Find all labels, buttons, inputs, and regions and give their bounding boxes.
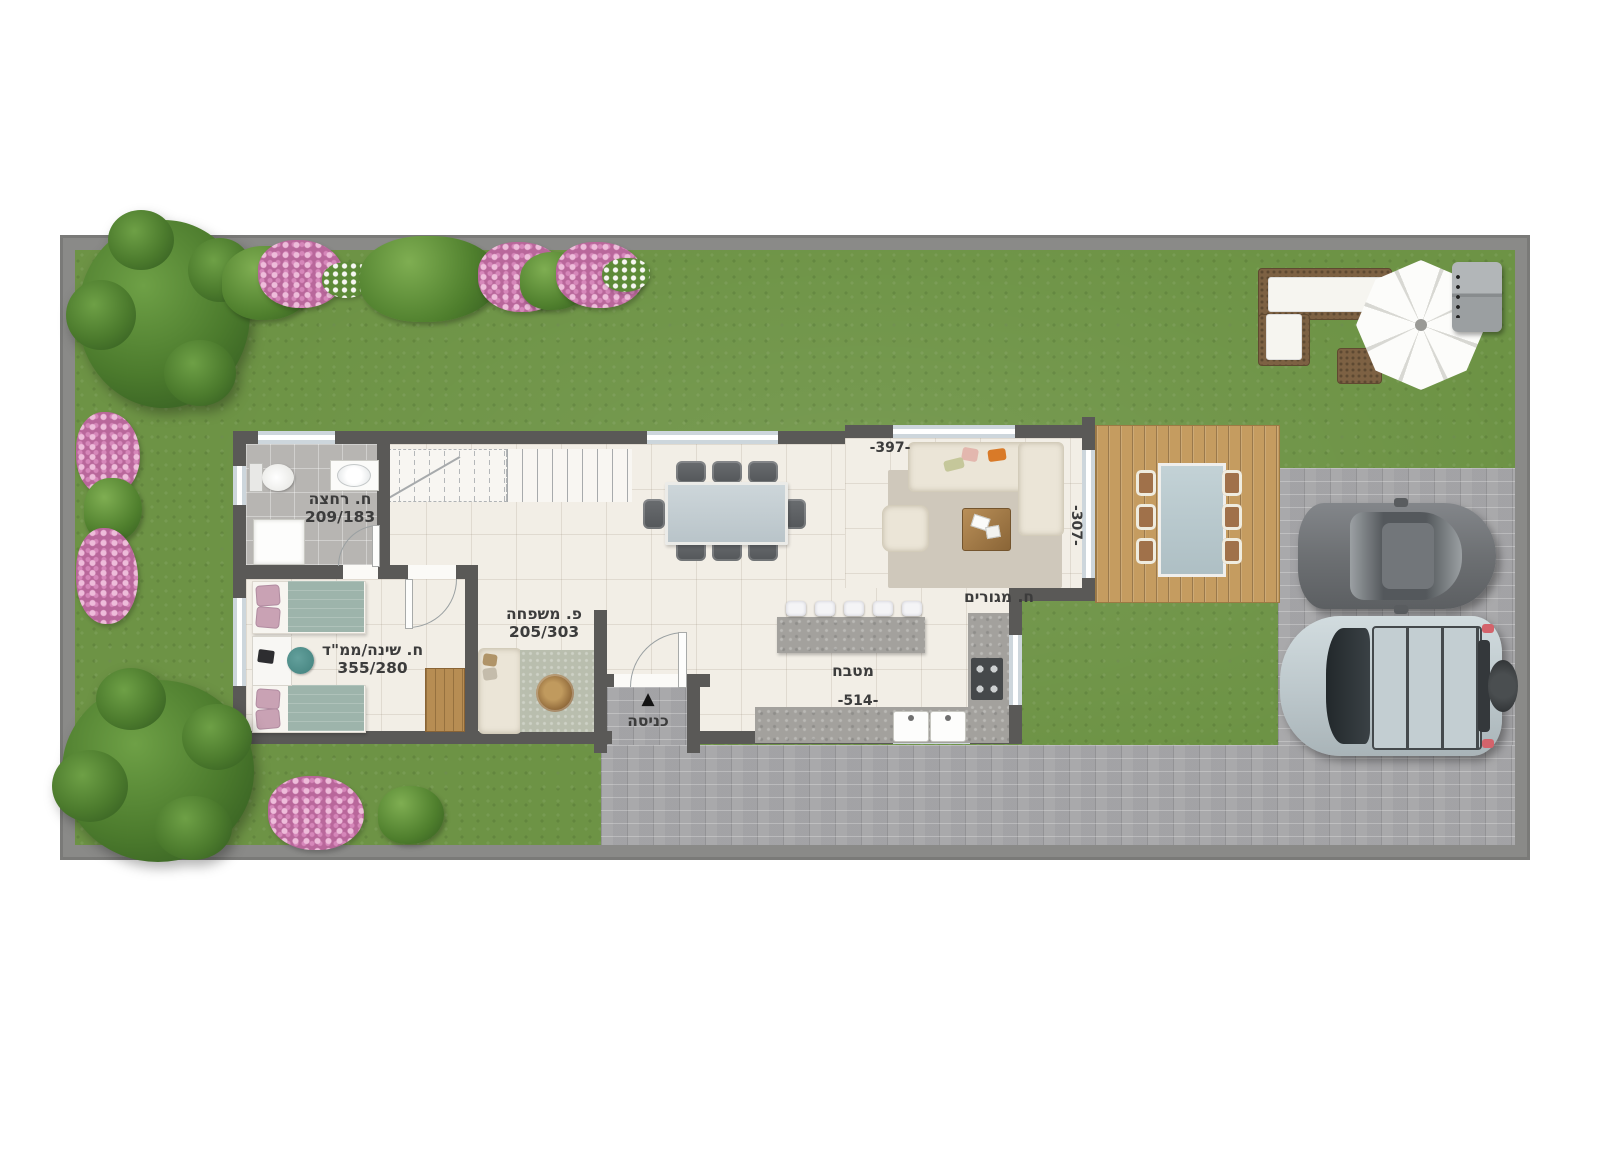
wall-entry-left xyxy=(594,674,614,687)
bedroom-door-opening xyxy=(408,565,456,579)
car-suv-spare-wheel xyxy=(1488,660,1518,712)
tree xyxy=(78,220,250,408)
floor-plan-canvas: ח. רחצה 209/183 ח. שינה/ממ"ד 355/280 פ. … xyxy=(0,0,1600,1163)
window-bedroom-left xyxy=(233,598,246,686)
bed-pillow xyxy=(255,688,280,710)
coffee-table-decor xyxy=(985,525,1001,539)
outdoor-chair xyxy=(1136,538,1156,564)
staircase-treads-hidden xyxy=(383,449,507,502)
bar-stool xyxy=(902,601,922,616)
living-sofa-chaise xyxy=(1018,442,1064,536)
kitchen-sink xyxy=(893,711,929,742)
wardrobe xyxy=(425,668,465,732)
bar-stool xyxy=(844,601,864,616)
entrance-name: כניסה xyxy=(606,712,690,730)
car-sedan xyxy=(1298,503,1496,609)
bar-stool xyxy=(786,601,806,616)
bbq-grill-knobs xyxy=(1456,272,1460,318)
laptop xyxy=(257,649,275,664)
window-bathroom-left xyxy=(233,466,246,505)
outdoor-chair xyxy=(1136,470,1156,496)
flower-cluster-pink xyxy=(268,776,364,850)
dining-chair xyxy=(643,499,665,529)
kitchen-island xyxy=(777,617,925,653)
living-side-dim: -307- xyxy=(1066,482,1084,568)
bedroom-door-leaf xyxy=(405,579,413,629)
sofa-pillow xyxy=(482,667,498,681)
bar-stool xyxy=(873,601,893,616)
outdoor-chair xyxy=(1136,504,1156,530)
armchair xyxy=(882,505,929,552)
bathroom-label: ח. רחצה 209/183 xyxy=(280,490,400,527)
entrance-label: כניסה xyxy=(606,712,690,730)
bathroom-size: 209/183 xyxy=(280,508,400,526)
staircase-treads xyxy=(507,449,632,502)
car-mirror xyxy=(1394,498,1408,507)
wall-bedroom-top-1 xyxy=(246,565,343,579)
toilet xyxy=(262,464,294,491)
kitchen-width-dim: -514- xyxy=(812,693,904,709)
bathroom-door-opening xyxy=(343,565,378,579)
sofa-pillow xyxy=(482,653,498,667)
outdoor-chair xyxy=(1222,470,1242,496)
umbrella-pole xyxy=(1415,319,1427,331)
window-dining-top xyxy=(647,431,778,444)
dining-chair xyxy=(748,461,778,483)
bed-pillow xyxy=(255,708,281,730)
dining-table xyxy=(665,482,788,545)
dining-chair xyxy=(712,461,742,483)
outdoor-chair xyxy=(1222,504,1242,530)
entrance-arrow-icon: ▲ xyxy=(638,691,658,708)
stove xyxy=(971,658,1003,700)
bar-stool xyxy=(815,601,835,616)
wall-bedroom-right xyxy=(465,565,478,731)
car-mirror xyxy=(1394,605,1408,614)
round-side-table xyxy=(536,674,574,712)
bedroom-label: ח. שינה/ממ"ד 355/280 xyxy=(295,641,450,678)
paved-yard-strip xyxy=(601,745,1515,845)
bed-pillow xyxy=(255,606,281,629)
bathroom-door-leaf xyxy=(372,525,380,567)
living-room-label: ח. מגורים xyxy=(938,588,1060,606)
car-suv xyxy=(1280,616,1502,756)
family-room-size: 205/303 xyxy=(484,623,604,641)
living-room-name: ח. מגורים xyxy=(938,588,1060,606)
dining-chair xyxy=(676,461,706,483)
bed-pillow xyxy=(255,584,280,607)
kitchen-counter-bottom xyxy=(755,707,1009,743)
toilet-tank xyxy=(249,463,263,492)
bathroom-name: ח. רחצה xyxy=(280,490,400,508)
sofa-pillow xyxy=(961,447,979,463)
entry-door-leaf xyxy=(678,632,687,688)
window-bathroom-top xyxy=(258,431,335,444)
bedroom-name: ח. שינה/ממ"ד xyxy=(295,641,450,659)
living-top-dim: -397- xyxy=(846,440,934,456)
wall-bedroom-top-2 xyxy=(378,565,408,579)
bathroom-sink-basin xyxy=(337,464,371,487)
family-room-label: פ. משפחה 205/303 xyxy=(484,605,604,642)
kitchen-name: מטבח xyxy=(807,662,899,680)
wall-entry-right xyxy=(686,674,710,687)
outdoor-dining-table xyxy=(1158,463,1226,577)
tree xyxy=(62,680,254,862)
car-taillight xyxy=(1482,739,1494,748)
bed-blanket xyxy=(288,685,364,731)
car-suv-windshield xyxy=(1326,628,1370,744)
flower-cluster-pink xyxy=(76,528,138,624)
car-suv-roof xyxy=(1372,626,1482,750)
window-living-top xyxy=(893,425,1015,438)
car-taillight xyxy=(1482,624,1494,633)
car-sedan-roof xyxy=(1382,523,1434,589)
outdoor-chair xyxy=(1222,538,1242,564)
sofa-pillow xyxy=(987,448,1006,462)
bedroom-size: 355/280 xyxy=(295,659,450,677)
window-kitchen-right xyxy=(1009,635,1022,705)
bed-blanket xyxy=(288,581,364,632)
kitchen-label: מטבח xyxy=(807,662,899,680)
kitchen-sink xyxy=(930,711,966,742)
family-room-name: פ. משפחה xyxy=(484,605,604,623)
outdoor-sofa-cushion xyxy=(1266,314,1302,360)
